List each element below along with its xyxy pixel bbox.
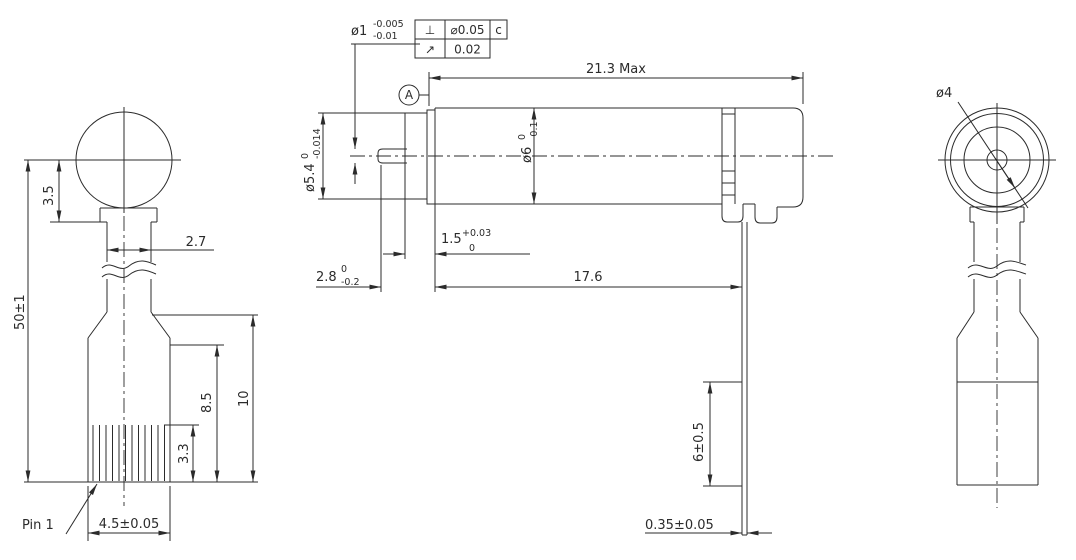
svg-text:-0.1: -0.1 — [529, 121, 540, 140]
band-clip-lower1 — [722, 171, 735, 183]
band-clip-top — [722, 108, 735, 114]
motor-drawing: 50±1 3.5 2.7 10 8.5 3.3 4 — [0, 0, 1076, 560]
svg-text:ø5.4: ø5.4 — [303, 163, 318, 192]
dim-pin-length: 3.3 — [177, 425, 193, 482]
svg-text:21.3 Max: 21.3 Max — [586, 62, 646, 77]
pin1-callout: Pin 1 — [22, 484, 97, 534]
connector-pins — [93, 425, 165, 481]
dim-cap-diameter: ø5.4 0 -0.014 — [300, 113, 323, 199]
dim-connector-length: 8.5 — [200, 345, 217, 482]
svg-text:0: 0 — [341, 264, 347, 275]
fpc-strip — [742, 222, 747, 535]
band-clip-lower2 — [722, 183, 735, 195]
svg-text:ø1: ø1 — [351, 24, 367, 39]
svg-text:c: c — [495, 23, 502, 37]
dim-fpc-drop: 6±0.5 — [692, 382, 710, 486]
tab-1 — [722, 204, 743, 222]
dim-ribbon-width: 2.7 — [107, 235, 214, 250]
tab-2 — [755, 204, 777, 223]
svg-text:1.5: 1.5 — [441, 232, 462, 247]
svg-text:10: 10 — [237, 390, 252, 407]
end-view: ø4 — [936, 86, 1056, 508]
svg-text:0.35±0.05: 0.35±0.05 — [645, 518, 714, 533]
break-symbol — [102, 261, 156, 277]
gdt-perpendicularity-frame: ⊥ ⌀0.05 c — [415, 20, 507, 39]
end-view-ribbon-outline — [957, 207, 1038, 485]
svg-text:ø4: ø4 — [936, 86, 952, 101]
svg-text:+0.03: +0.03 — [462, 228, 491, 239]
dim-overall-height: 50±1 — [13, 160, 28, 482]
svg-text:17.6: 17.6 — [574, 270, 603, 285]
dim-shaft-extension: 2.8 0 -0.2 — [316, 264, 381, 288]
svg-text:3.5: 3.5 — [42, 185, 57, 206]
dim-connector-width: 4.5±0.05 — [88, 517, 170, 533]
svg-text:0: 0 — [517, 134, 528, 140]
motor-body-outline — [435, 108, 803, 207]
extension-lines-side — [318, 72, 803, 486]
gdt-runout-frame: ↗ 0.02 — [415, 39, 490, 58]
svg-text:-0.005: -0.005 — [373, 19, 404, 30]
svg-text:0.02: 0.02 — [454, 43, 481, 57]
svg-text:50±1: 50±1 — [13, 294, 28, 330]
svg-text:-0.01: -0.01 — [373, 31, 398, 42]
dim-overall-length: 21.3 Max — [429, 62, 803, 78]
end-view-crosshair — [938, 103, 1056, 224]
svg-text:6±0.5: 6±0.5 — [692, 422, 707, 462]
circular-runout-icon: ↗ — [425, 43, 435, 57]
svg-text:2.8: 2.8 — [316, 270, 337, 285]
svg-text:A: A — [405, 88, 414, 102]
dim-fpc-thickness: 0.35±0.05 — [645, 518, 772, 533]
svg-text:ø6: ø6 — [520, 147, 535, 163]
perpendicularity-icon: ⊥ — [425, 23, 435, 37]
svg-text:8.5: 8.5 — [200, 392, 215, 413]
svg-text:-0.014: -0.014 — [312, 128, 323, 159]
dim-body-length: 17.6 — [435, 270, 742, 287]
svg-text:2.7: 2.7 — [186, 235, 207, 250]
svg-text:⌀0.05: ⌀0.05 — [451, 23, 485, 37]
svg-text:4.5±0.05: 4.5±0.05 — [99, 517, 160, 532]
dim-connector-outer: 10 — [237, 315, 253, 482]
dim-head-offset: 3.5 — [42, 160, 59, 222]
datum-a-flag: A — [399, 85, 429, 105]
svg-text:0: 0 — [469, 243, 475, 254]
svg-text:3.3: 3.3 — [177, 443, 192, 464]
front-view: 50±1 3.5 2.7 10 8.5 3.3 4 — [13, 107, 258, 541]
side-view: ø1 -0.005 -0.01 ⊥ ⌀0.05 c ↗ 0.02 A 21.3 — [300, 19, 833, 535]
svg-text:-0.2: -0.2 — [341, 277, 360, 288]
svg-text:0: 0 — [300, 153, 311, 159]
engineering-drawing-sheet: 50±1 3.5 2.7 10 8.5 3.3 4 — [0, 0, 1076, 560]
front-washer — [427, 110, 435, 204]
svg-text:Pin 1: Pin 1 — [22, 518, 54, 533]
